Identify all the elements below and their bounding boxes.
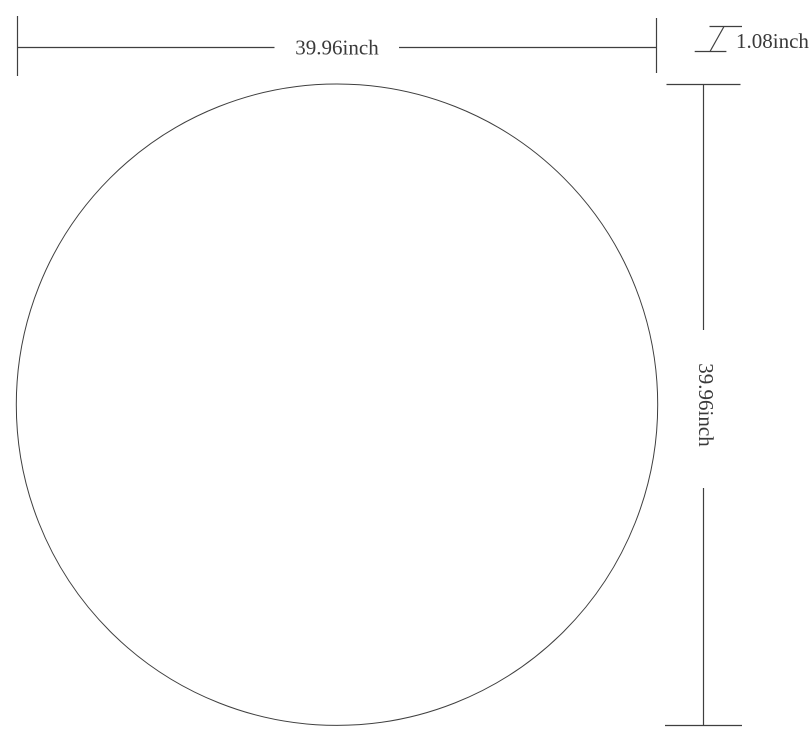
- svg-text:39.96inch: 39.96inch: [295, 36, 379, 60]
- svg-text:39.96inch: 39.96inch: [694, 363, 718, 447]
- svg-text:1.08inch: 1.08inch: [736, 29, 809, 53]
